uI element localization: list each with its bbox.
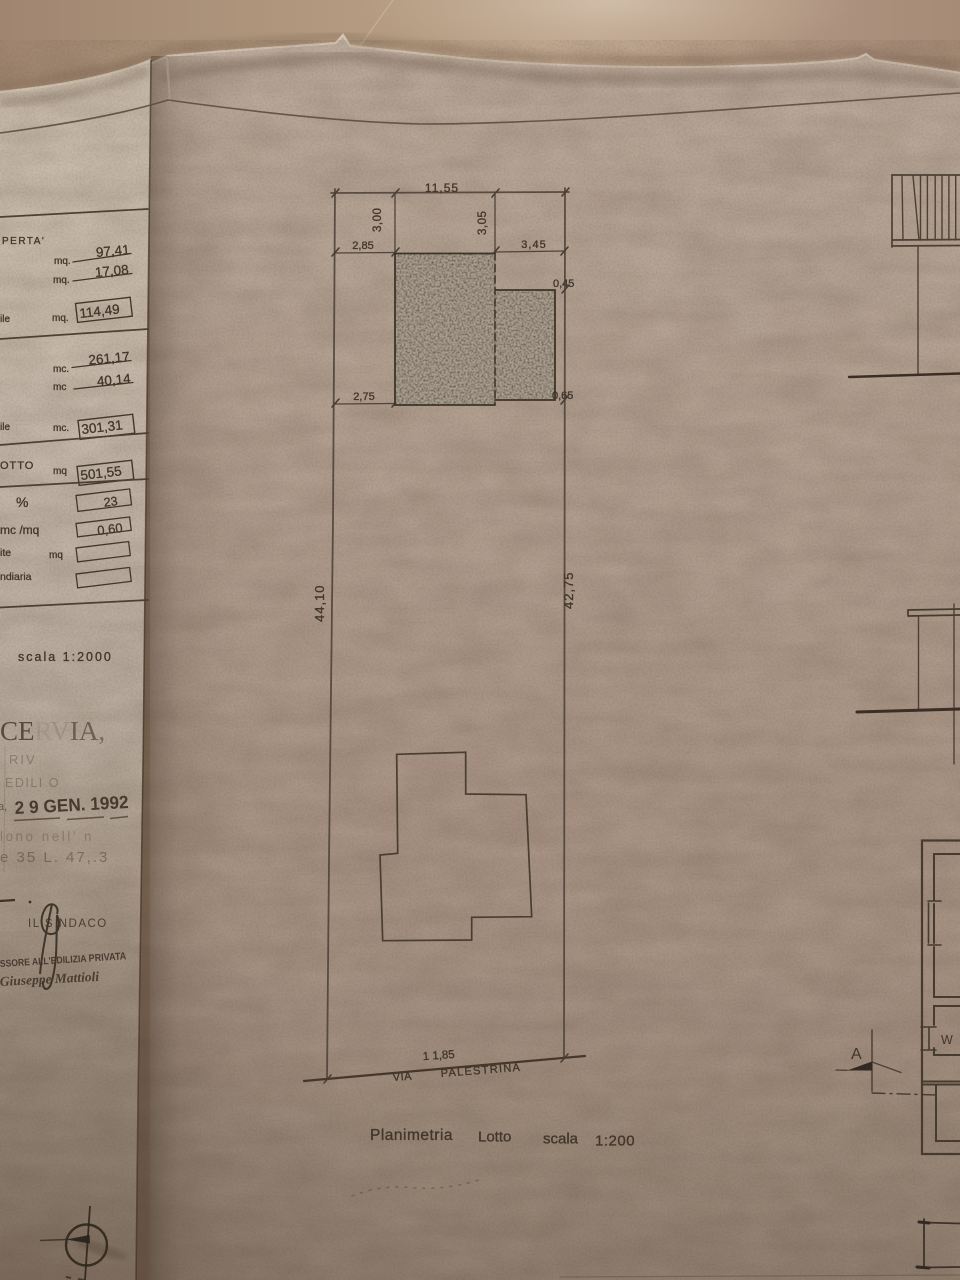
svg-text:lono nell’ n: lono nell’ n <box>0 829 94 844</box>
svg-text:ndiaria: ndiaria <box>0 571 32 583</box>
svg-text:ile: ile <box>0 314 10 325</box>
svg-text:mc.: mc. <box>53 364 69 375</box>
svg-text:EDILI O: EDILI O <box>5 776 60 790</box>
svg-text:scala 1:2000: scala 1:2000 <box>18 650 113 664</box>
svg-text:97,41: 97,41 <box>95 242 130 260</box>
svg-text:11,55: 11,55 <box>425 181 459 195</box>
svg-text:OTTO: OTTO <box>0 460 34 472</box>
svg-text:mq.: mq. <box>54 256 71 267</box>
svg-text:0,65: 0,65 <box>552 390 573 402</box>
svg-text:ile: ile <box>0 422 10 433</box>
svg-text:mc: mc <box>53 382 66 393</box>
svg-text:Lotto: Lotto <box>478 1129 511 1146</box>
svg-text:PERTA': PERTA' <box>2 236 45 247</box>
svg-text:%: % <box>16 494 28 510</box>
svg-text:2,85: 2,85 <box>352 240 373 252</box>
svg-text:3,05: 3,05 <box>477 211 489 235</box>
svg-text:1 1,85: 1 1,85 <box>422 1049 455 1063</box>
svg-text:2,75: 2,75 <box>353 391 374 403</box>
svg-text:0,60: 0,60 <box>96 520 123 538</box>
svg-text:3,00: 3,00 <box>372 208 384 232</box>
svg-text:44,10: 44,10 <box>312 584 327 622</box>
svg-text:W: W <box>941 1033 953 1047</box>
svg-text:mq: mq <box>49 550 63 561</box>
svg-text:mc.: mc. <box>53 423 69 434</box>
svg-text:3,45: 3,45 <box>521 239 546 251</box>
svg-text:mq.: mq. <box>52 313 69 324</box>
svg-text:VIA: VIA <box>392 1071 412 1084</box>
svg-text:IL S NDACO: IL S NDACO <box>28 918 108 930</box>
svg-text:mq: mq <box>53 466 67 477</box>
svg-text:A: A <box>851 1046 862 1063</box>
svg-text:CERVIA,: CERVIA, <box>0 716 105 746</box>
svg-text:1:200: 1:200 <box>595 1133 635 1150</box>
svg-text:mq.: mq. <box>53 275 70 286</box>
svg-text:23: 23 <box>103 494 119 510</box>
svg-text:e 35 L. 47,.3: e 35 L. 47,.3 <box>0 849 109 866</box>
svg-text:Planimetria: Planimetria <box>370 1127 453 1144</box>
svg-text:a,: a, <box>0 801 7 813</box>
svg-text:mc /mq: mc /mq <box>0 523 39 537</box>
svg-text:ite: ite <box>0 547 11 559</box>
svg-text:RIV: RIV <box>9 752 37 767</box>
svg-text:scala: scala <box>543 1131 579 1148</box>
svg-text:0,45: 0,45 <box>553 278 574 290</box>
svg-text:42,75: 42,75 <box>561 571 576 609</box>
